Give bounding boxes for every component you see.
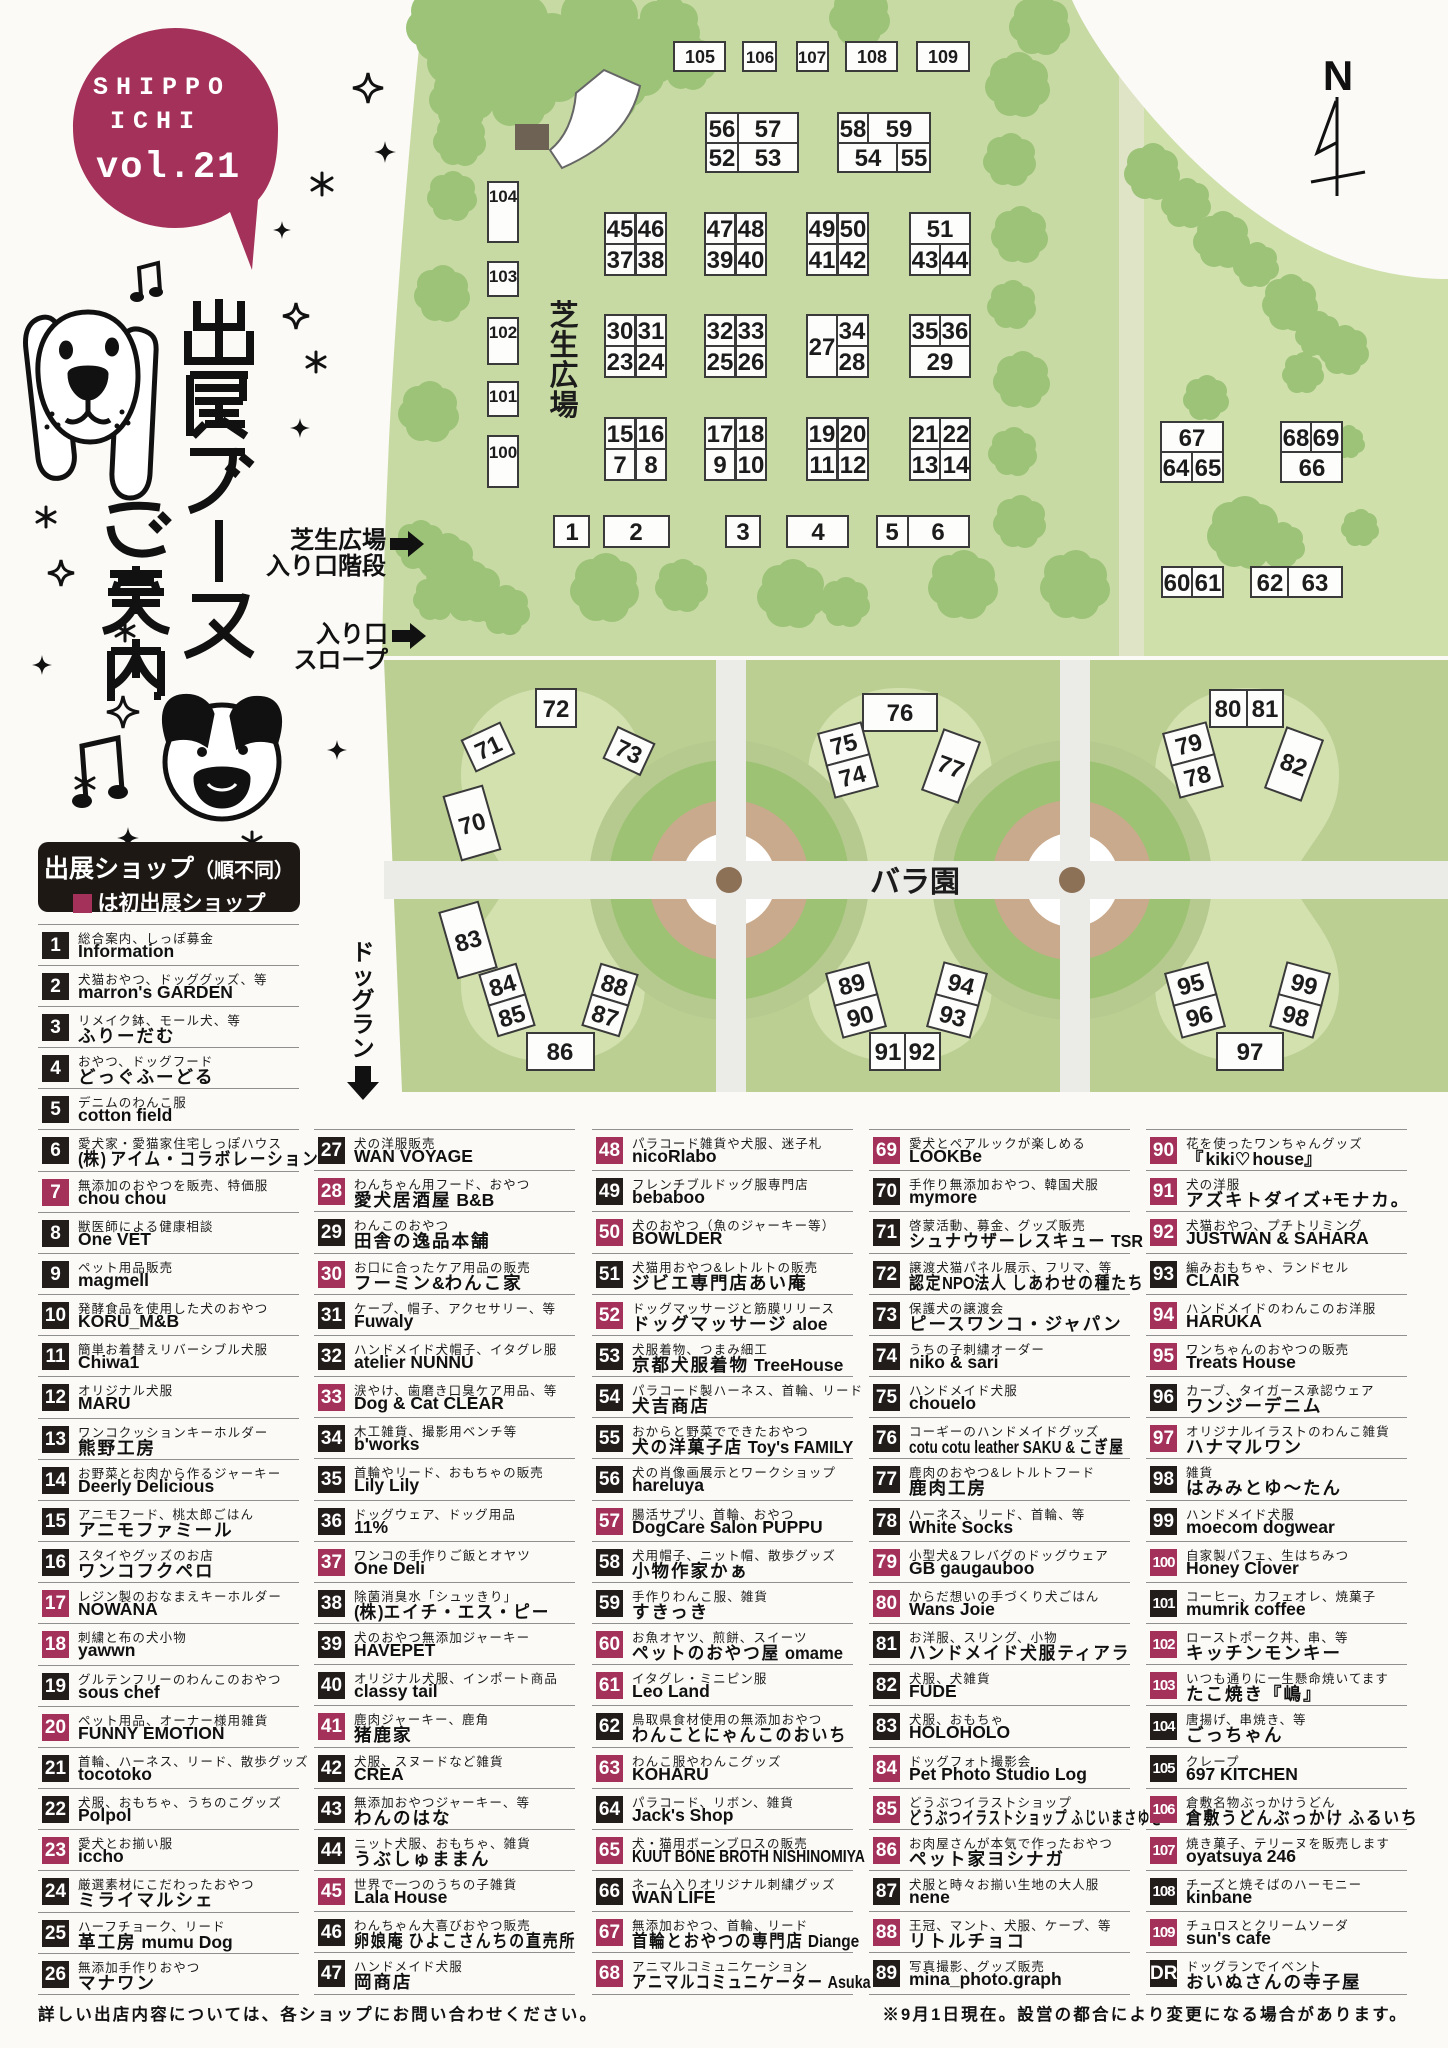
svg-text:スロープ: スロープ [293,647,389,674]
svg-text:生: 生 [549,329,578,362]
svg-text:グ: グ [352,987,375,1013]
svg-text:33: 33 [738,318,765,345]
svg-text:52: 52 [709,145,736,172]
svg-text:22: 22 [943,421,970,448]
svg-text:芝生広場: 芝生広場 [290,526,386,554]
svg-text:入り口: 入り口 [316,621,388,648]
svg-text:38: 38 [638,247,665,274]
svg-text:ラ: ラ [352,1011,375,1037]
svg-text:53: 53 [755,145,782,172]
svg-text:108: 108 [857,47,887,67]
svg-text:ド: ド [352,939,375,965]
svg-text:13: 13 [912,452,939,479]
svg-text:14: 14 [943,452,970,479]
svg-text:26: 26 [738,349,765,376]
svg-text:36: 36 [942,318,969,345]
svg-text:29: 29 [927,349,954,376]
svg-text:ッ: ッ [352,963,375,989]
svg-text:69: 69 [1313,425,1340,452]
svg-text:100: 100 [489,443,517,462]
svg-text:43: 43 [912,247,939,274]
svg-text:57: 57 [755,116,782,143]
svg-text:17: 17 [707,421,734,448]
svg-text:40: 40 [738,247,765,274]
svg-text:9: 9 [713,452,726,479]
svg-text:35: 35 [912,318,939,345]
svg-text:68: 68 [1283,425,1310,452]
svg-text:58: 58 [840,116,867,143]
svg-text:25: 25 [707,349,734,376]
svg-text:42: 42 [840,247,867,274]
svg-text:3: 3 [736,519,749,546]
svg-text:ン: ン [352,1035,375,1061]
svg-text:45: 45 [607,216,634,243]
svg-text:105: 105 [685,47,715,67]
svg-text:48: 48 [738,216,765,243]
svg-text:102: 102 [489,323,517,342]
svg-text:80: 80 [1215,696,1242,723]
svg-text:39: 39 [707,247,734,274]
svg-text:vol.21: vol.21 [96,147,241,189]
svg-text:101: 101 [489,387,517,406]
svg-text:51: 51 [927,216,954,243]
svg-text:12: 12 [840,452,867,479]
svg-text:62: 62 [1257,570,1284,597]
svg-text:55: 55 [901,145,928,172]
svg-text:59: 59 [886,116,913,143]
svg-text:2: 2 [629,519,642,546]
svg-text:56: 56 [709,116,736,143]
svg-text:19: 19 [809,421,836,448]
svg-text:18: 18 [738,421,765,448]
svg-text:64: 64 [1163,455,1190,482]
svg-text:11: 11 [809,452,834,479]
svg-text:109: 109 [928,47,958,67]
svg-text:6: 6 [931,519,944,546]
svg-text:41: 41 [809,247,836,274]
svg-text:入り口階段: 入り口階段 [266,552,386,580]
svg-text:7: 7 [613,452,626,479]
svg-text:61: 61 [1195,570,1222,597]
svg-text:76: 76 [887,700,914,727]
svg-text:34: 34 [839,318,866,345]
svg-text:104: 104 [489,187,518,206]
svg-text:21: 21 [912,421,939,448]
svg-text:86: 86 [547,1039,574,1066]
svg-text:20: 20 [840,421,867,448]
svg-text:107: 107 [798,48,826,67]
svg-text:63: 63 [1302,570,1329,597]
svg-text:5: 5 [885,519,898,546]
svg-text:72: 72 [543,696,570,723]
svg-text:広: 広 [549,359,578,392]
svg-text:103: 103 [489,267,517,286]
svg-text:8: 8 [644,452,657,479]
svg-text:32: 32 [707,318,734,345]
svg-text:50: 50 [840,216,867,243]
svg-text:60: 60 [1164,570,1191,597]
svg-text:31: 31 [638,318,665,345]
svg-text:15: 15 [607,421,634,448]
svg-text:1: 1 [565,519,578,546]
svg-text:54: 54 [855,145,882,172]
svg-text:37: 37 [607,247,634,274]
svg-text:ICHI: ICHI [110,107,202,136]
svg-text:SHIPPO: SHIPPO [93,73,231,102]
svg-text:10: 10 [738,452,765,479]
svg-text:24: 24 [638,349,665,376]
svg-text:44: 44 [942,247,969,274]
svg-text:106: 106 [746,48,774,67]
svg-text:28: 28 [839,349,866,376]
svg-text:65: 65 [1195,455,1222,482]
svg-text:49: 49 [809,216,836,243]
svg-text:47: 47 [707,216,734,243]
svg-text:67: 67 [1179,425,1206,452]
svg-text:27: 27 [809,334,836,361]
svg-text:91: 91 [875,1039,902,1066]
svg-text:N: N [1323,52,1353,99]
svg-text:23: 23 [607,349,634,376]
svg-text:バラ園: バラ園 [870,866,960,899]
svg-text:30: 30 [607,318,634,345]
svg-text:66: 66 [1299,455,1326,482]
svg-text:81: 81 [1252,696,1279,723]
svg-text:芝: 芝 [549,299,578,332]
svg-text:16: 16 [638,421,665,448]
svg-text:97: 97 [1237,1039,1264,1066]
svg-text:92: 92 [909,1039,936,1066]
svg-text:4: 4 [811,519,825,546]
svg-text:場: 場 [549,389,578,422]
svg-text:46: 46 [638,216,665,243]
